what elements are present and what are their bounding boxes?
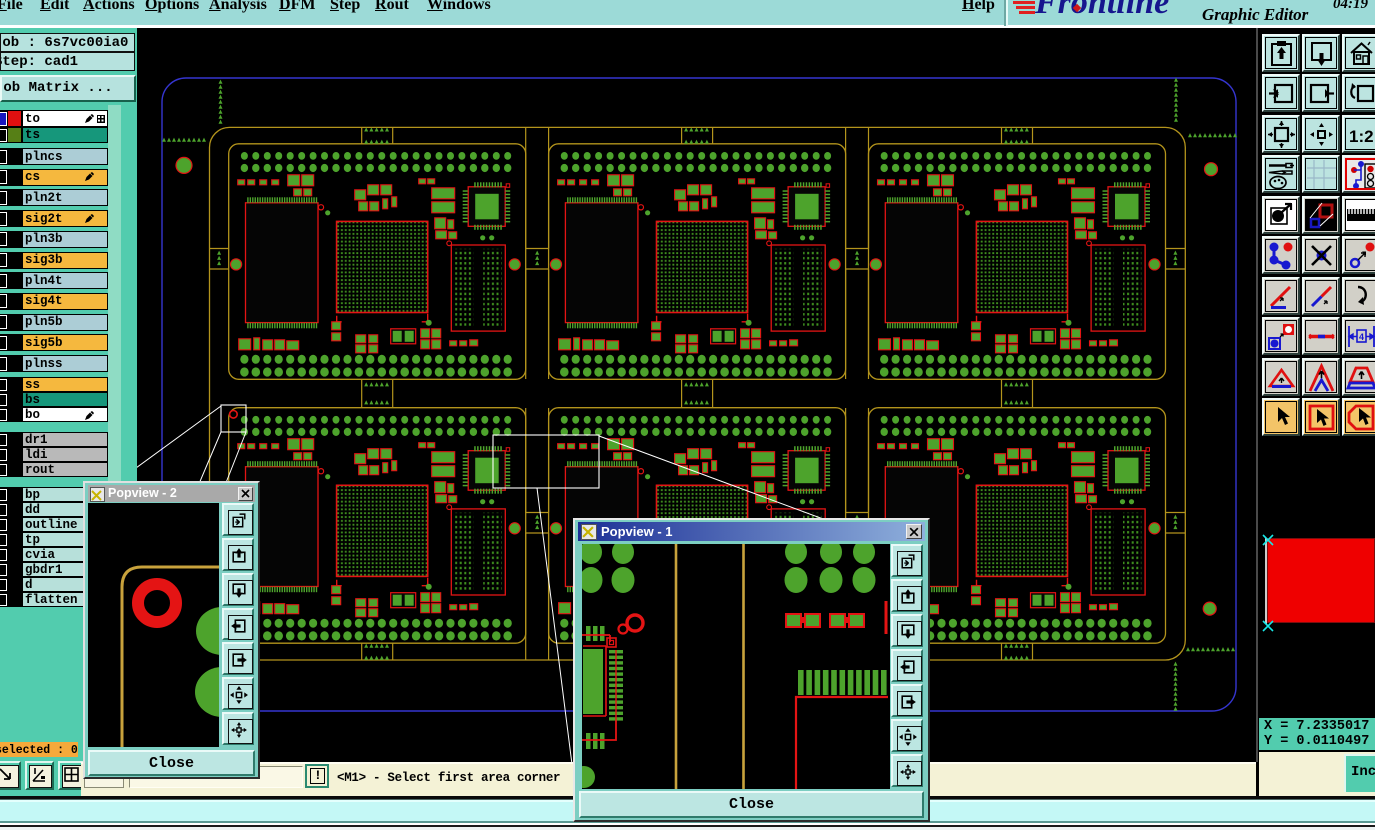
svg-text:4: 4 [1359,332,1364,342]
svg-text:1:2: 1:2 [1349,127,1374,146]
